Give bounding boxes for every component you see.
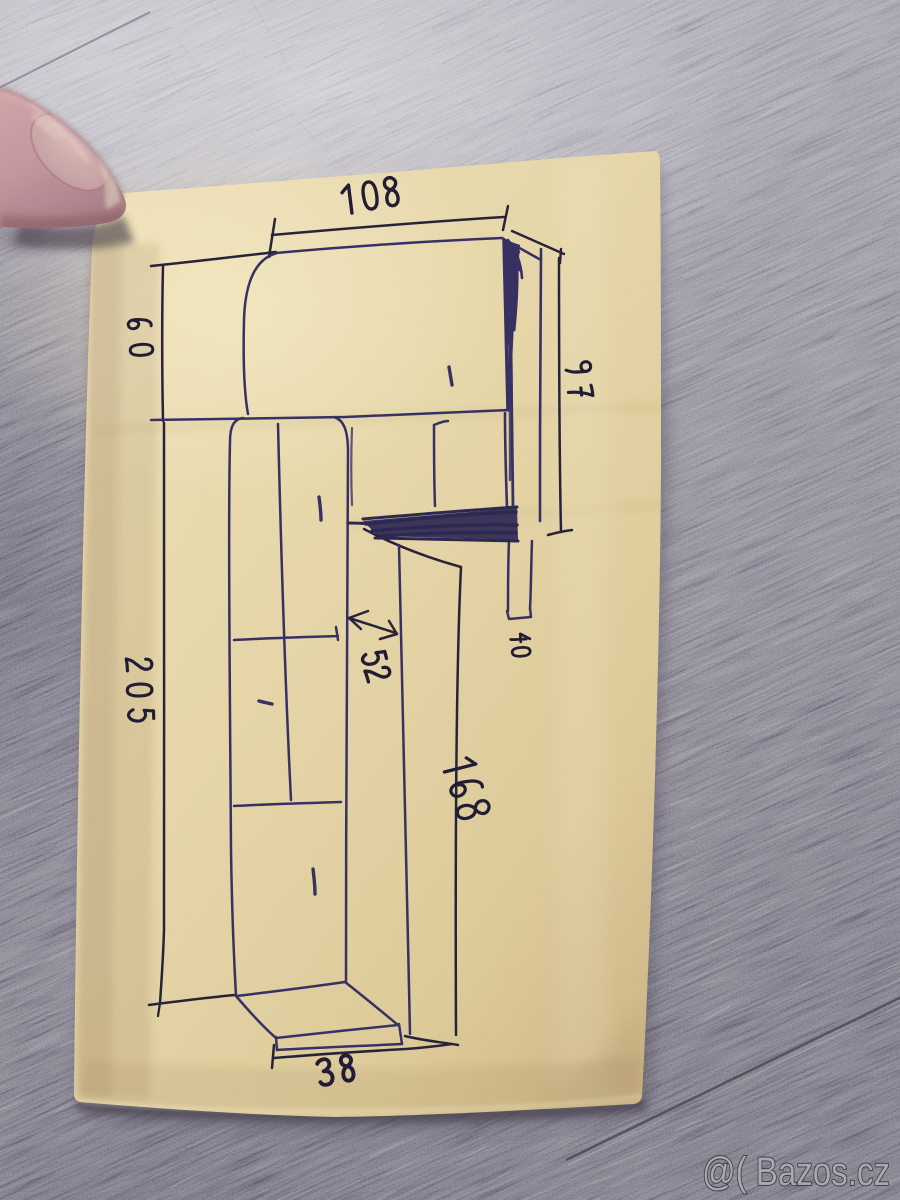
svg-text:@( Bazos.cz: @( Bazos.cz [702, 1150, 890, 1194]
